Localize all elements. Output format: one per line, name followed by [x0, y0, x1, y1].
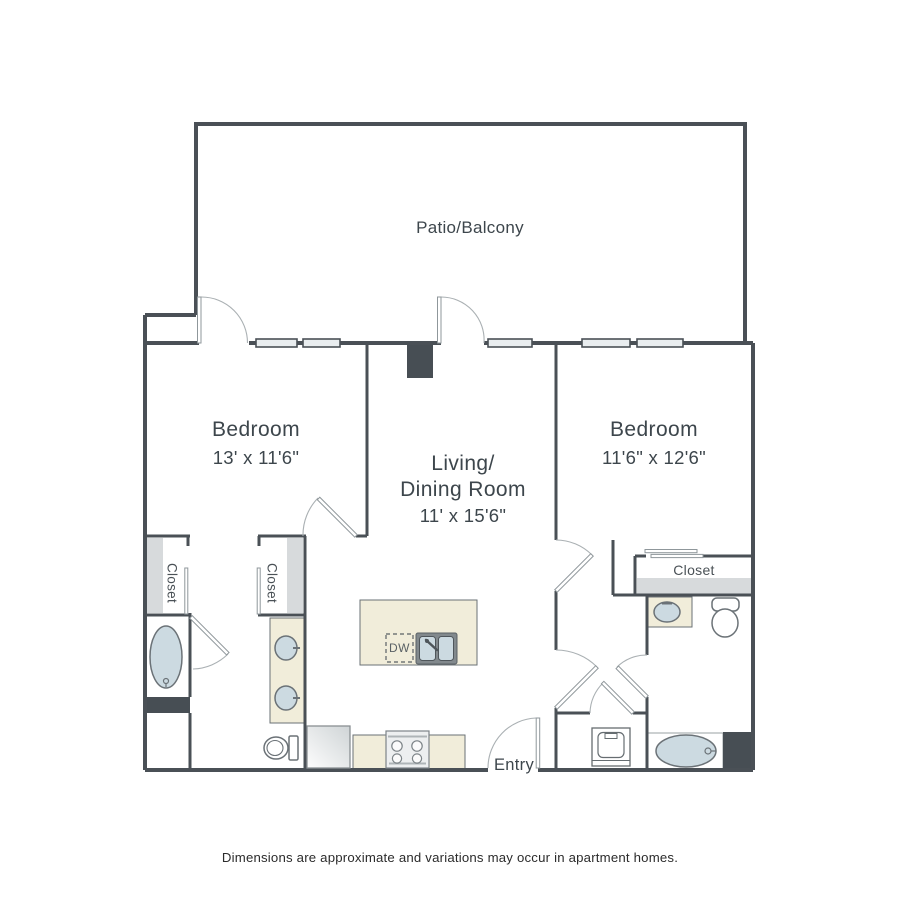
burner-icon	[412, 754, 421, 763]
mid-closet-door	[257, 568, 260, 614]
floor-plan-page: Patio/Balcony Bedroom 13' x 11'6" Living…	[0, 0, 900, 900]
window	[582, 339, 630, 347]
bedroom-right-door	[555, 554, 594, 593]
mid-closet-shelf	[287, 538, 303, 613]
left-bath-door	[190, 616, 229, 655]
right-toilet	[712, 598, 739, 637]
right-closet-slider	[645, 550, 697, 553]
refrigerator	[307, 726, 350, 768]
patio-label: Patio/Balcony	[416, 218, 524, 237]
living-name-line1: Living/	[431, 452, 495, 475]
right-bath-door	[616, 666, 648, 698]
sink-basin	[439, 637, 454, 661]
bedroom-right-dims: 11'6" x 12'6"	[602, 447, 706, 468]
bedroom-left-dims: 13' x 11'6"	[213, 447, 300, 468]
stove	[386, 731, 429, 768]
toilet-tank-icon	[289, 736, 298, 760]
right-closet-shelf	[637, 578, 751, 594]
kitchen-sink	[416, 633, 457, 664]
window	[256, 339, 297, 347]
floor-plan: Patio/Balcony Bedroom 13' x 11'6" Living…	[0, 0, 900, 900]
washer-controls	[605, 734, 617, 739]
windows	[256, 339, 683, 347]
closet-left-label: Closet	[164, 563, 179, 603]
burner-icon	[412, 741, 422, 751]
bedroom-left-name: Bedroom	[212, 418, 300, 441]
left-closet-shelf	[147, 538, 163, 613]
burner-icon	[392, 741, 402, 751]
bedroom-right-name: Bedroom	[610, 418, 698, 441]
faucet-base	[425, 639, 429, 643]
window	[488, 339, 532, 347]
entry-door	[536, 718, 540, 768]
door-panels	[185, 297, 703, 768]
window	[637, 339, 683, 347]
entry-label: Entry	[494, 756, 534, 774]
washer-dryer	[592, 728, 630, 766]
bathtub-icon	[656, 735, 716, 767]
left-toilet	[264, 736, 298, 760]
wall-column	[407, 343, 433, 378]
right-bathtub	[656, 735, 716, 767]
patio-door-left	[198, 297, 202, 343]
burner-icon	[392, 754, 401, 763]
toilet-bowl-icon	[712, 609, 738, 637]
window	[303, 339, 340, 347]
dishwasher-label: DW	[389, 641, 410, 655]
laundry-door	[601, 681, 634, 714]
right-closet-slider	[651, 554, 703, 557]
bedroom-left-door	[317, 497, 357, 537]
left-closet-door	[185, 568, 188, 614]
sink-icon	[654, 602, 680, 622]
living-dims: 11' x 15'6"	[420, 505, 507, 526]
living-name-line2: Dining Room	[400, 478, 526, 501]
left-bathtub	[150, 626, 182, 688]
right-vanity	[654, 602, 680, 622]
left-bath-wall-block	[145, 697, 190, 713]
right-bath-wall-block	[723, 732, 753, 770]
closet-right-label: Closet	[673, 562, 714, 578]
closet-mid-label: Closet	[264, 563, 279, 603]
disclaimer-text: Dimensions are approximate and variation…	[222, 850, 678, 865]
patio-door-living	[438, 297, 442, 343]
